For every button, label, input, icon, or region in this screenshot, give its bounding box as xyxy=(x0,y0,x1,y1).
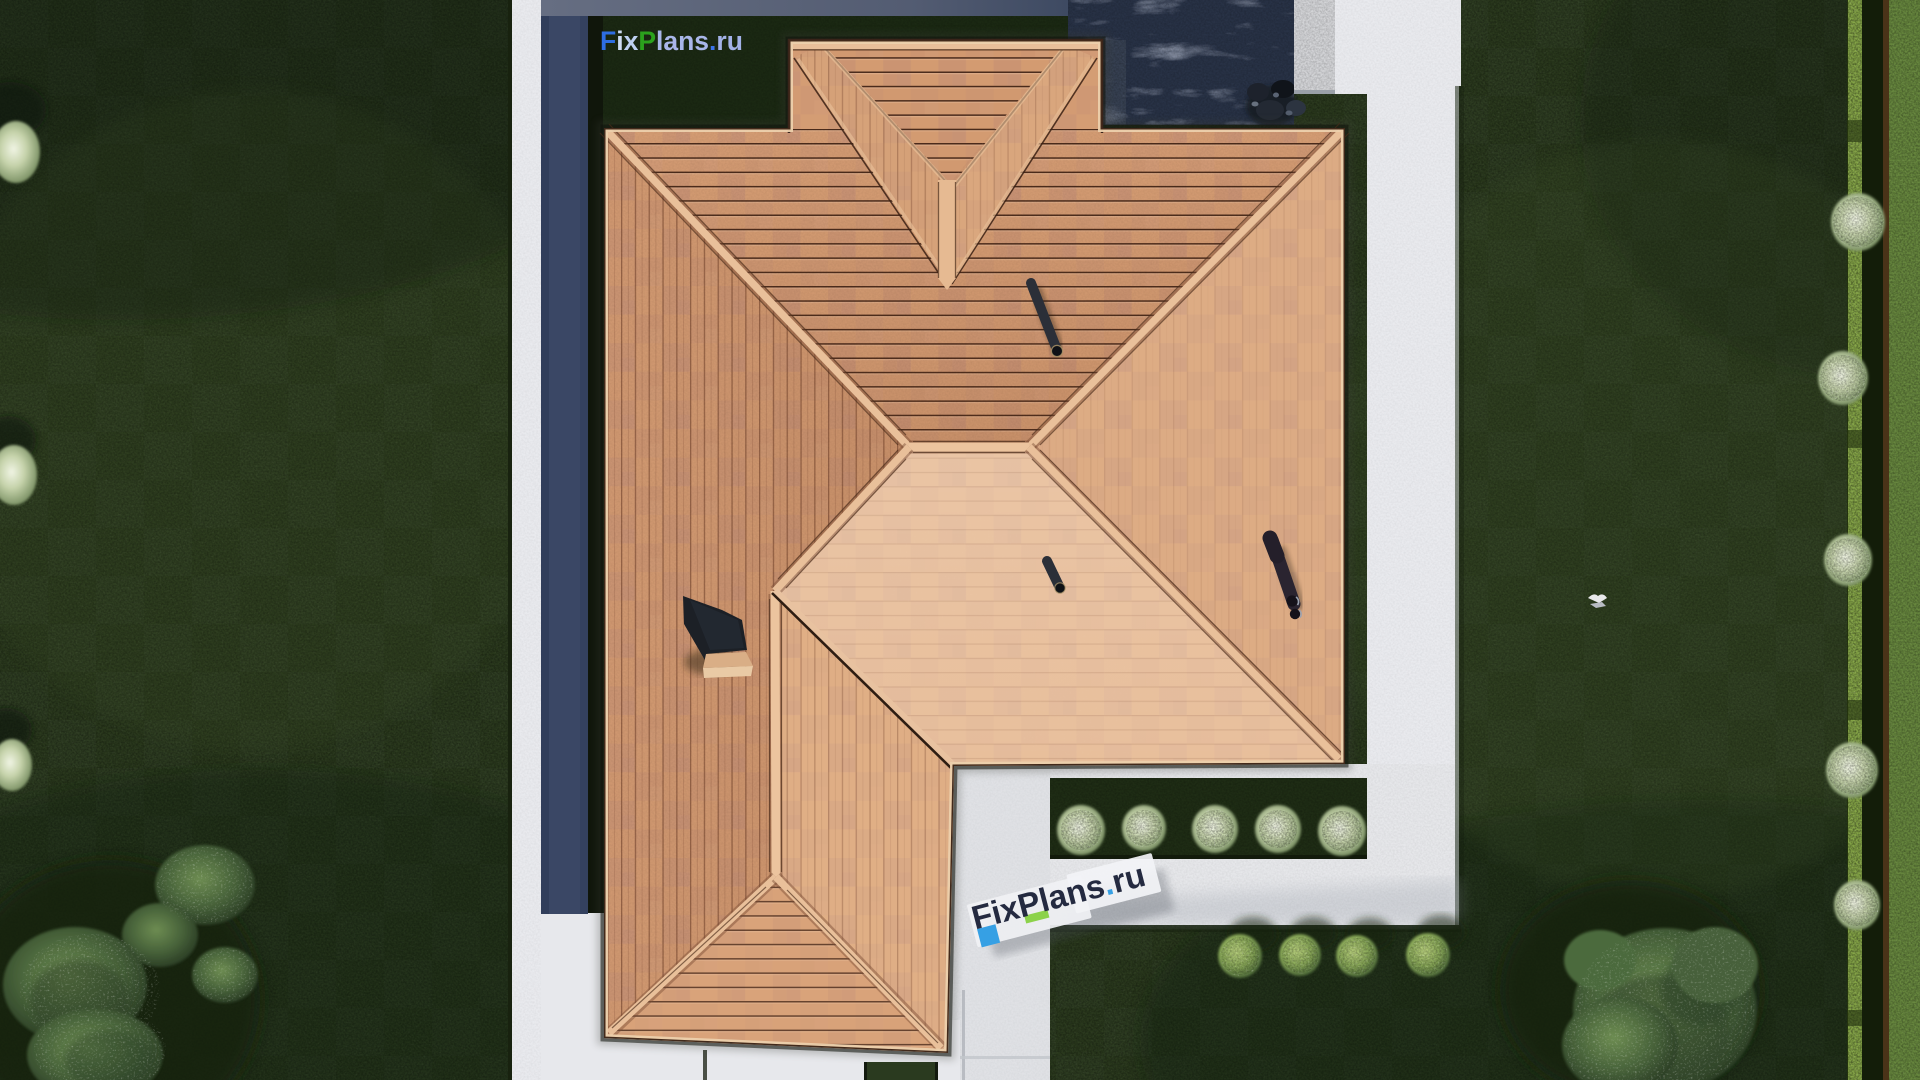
svg-text:FixPlans.ru: FixPlans.ru xyxy=(600,26,743,56)
